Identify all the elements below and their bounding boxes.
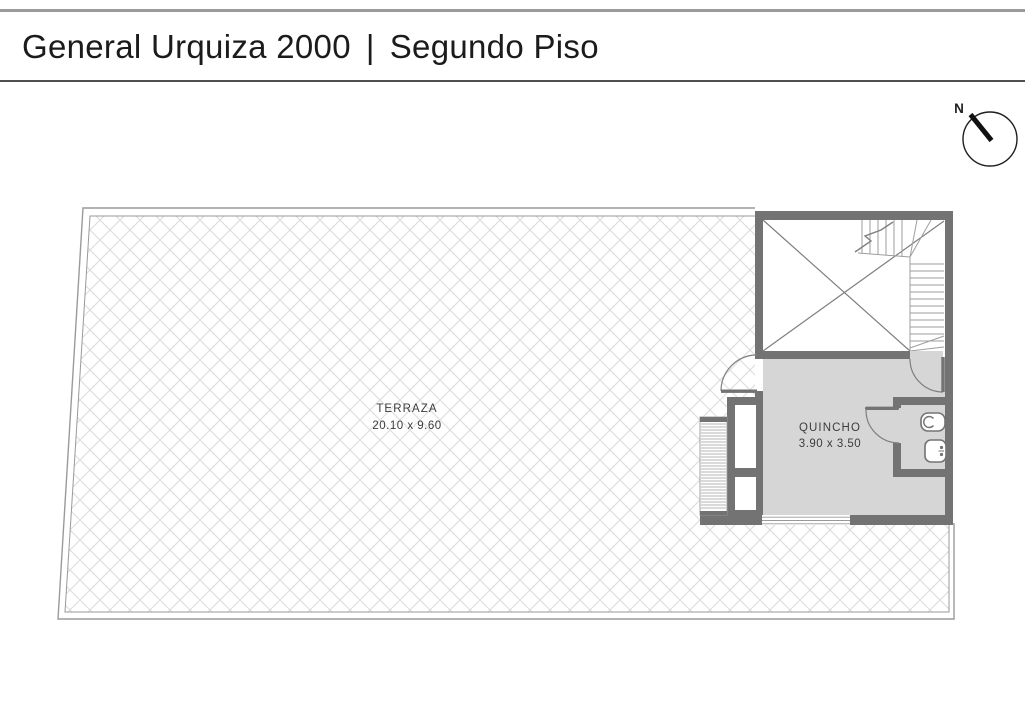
wall-top (755, 211, 953, 220)
north-arrow: N (954, 101, 1017, 166)
quincho-label: QUINCHO (799, 422, 861, 434)
louver-bottom-cap (700, 511, 727, 515)
quincho-room: QUINCHO 3.90 x 3.50 (763, 351, 945, 515)
door-leaf (721, 390, 757, 393)
stair-door-opening (910, 351, 943, 359)
quincho-window (762, 515, 850, 525)
terraza-label: TERRAZA (376, 403, 437, 415)
louver-strip (700, 417, 727, 515)
wall-stairwell-left (755, 211, 763, 357)
floor-plan-drawing: TERRAZA 20.10 x 9.60 QUINCHO 3. (0, 0, 1025, 713)
parrilla-inner-lower (735, 477, 756, 510)
stairwell (763, 220, 945, 351)
parrilla-inner-upper (735, 405, 756, 468)
sink-icon (925, 440, 946, 462)
door-leaf (941, 357, 944, 392)
quincho-dimensions: 3.90 x 3.50 (799, 438, 861, 450)
quincho-floor (763, 359, 945, 515)
wall-stair-quincho-divider (755, 351, 910, 359)
bathroom-wall-left-upper (893, 397, 901, 408)
terraza-dimensions: 20.10 x 9.60 (372, 420, 441, 432)
wall-right (945, 211, 953, 525)
parrilla-structure (727, 397, 763, 517)
bathroom-wall-bottom (893, 469, 945, 477)
floor-plan-page: General Urquiza 2000|Segundo Piso TERRAZ… (0, 0, 1025, 713)
louver-top-cap (700, 417, 727, 422)
toilet-icon (921, 413, 945, 431)
door-leaf (865, 407, 899, 410)
north-label: N (954, 101, 964, 116)
